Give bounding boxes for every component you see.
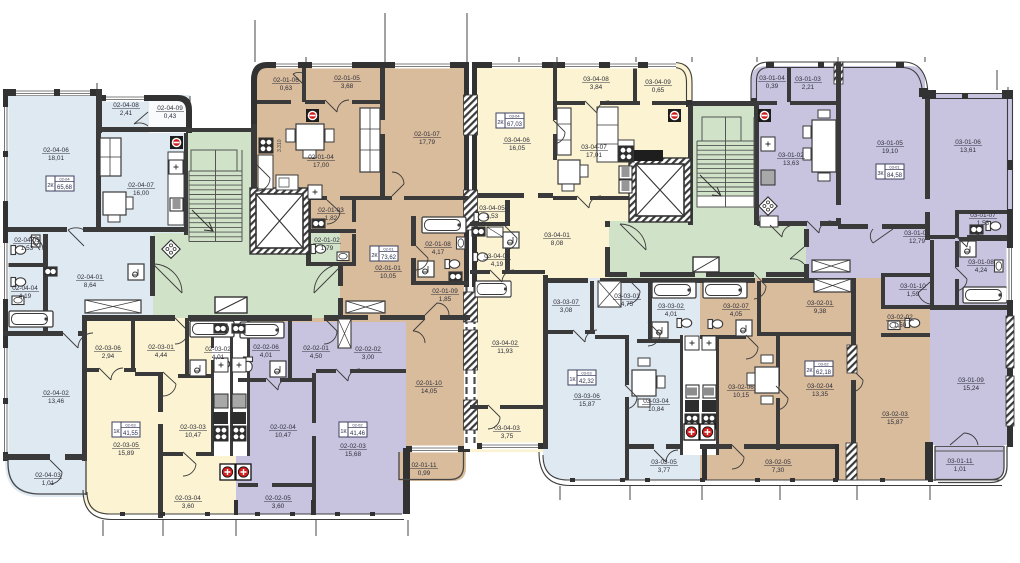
svg-text:02-01: 02-01 — [383, 247, 394, 252]
svg-text:02-04-09: 02-04-09 — [157, 105, 183, 112]
svg-text:1,53: 1,53 — [21, 245, 34, 252]
svg-text:02-04-08: 02-04-08 — [113, 102, 139, 109]
svg-text:03-04-08: 03-04-08 — [583, 76, 609, 83]
svg-text:1,82: 1,82 — [325, 215, 338, 222]
svg-text:02-02-06: 02-02-06 — [253, 344, 279, 351]
svg-text:03-04-05: 03-04-05 — [479, 205, 505, 212]
svg-text:4,17: 4,17 — [432, 249, 445, 256]
svg-text:03-01-07: 03-01-07 — [970, 212, 996, 219]
svg-text:3,84: 3,84 — [590, 84, 603, 91]
svg-text:4,50: 4,50 — [310, 353, 323, 360]
svg-text:0,99: 0,99 — [418, 470, 431, 477]
svg-text:02-01-01: 02-01-01 — [375, 265, 401, 272]
svg-text:02-03-02: 02-03-02 — [205, 346, 231, 353]
svg-text:02-03-05: 02-03-05 — [113, 442, 139, 449]
svg-text:03-03: 03-03 — [581, 371, 592, 376]
svg-text:4,44: 4,44 — [155, 352, 168, 359]
svg-text:03-02-02: 03-02-02 — [887, 314, 913, 321]
svg-text:10,84: 10,84 — [648, 406, 664, 413]
svg-text:03-02: 03-02 — [818, 362, 829, 367]
svg-text:1,01: 1,01 — [42, 480, 55, 487]
svg-text:03-04-02: 03-04-02 — [492, 340, 518, 347]
svg-text:2К: 2К — [47, 183, 54, 189]
svg-text:4,01: 4,01 — [212, 354, 225, 361]
svg-text:02-04-06: 02-04-06 — [43, 147, 69, 154]
svg-text:03-01-11: 03-01-11 — [947, 458, 973, 465]
svg-text:03-01-03: 03-01-03 — [795, 76, 821, 83]
svg-text:41,46: 41,46 — [350, 431, 366, 437]
svg-text:03-03-07: 03-03-07 — [553, 299, 579, 306]
svg-text:10,15: 10,15 — [733, 392, 749, 399]
svg-text:03-02-06: 03-02-06 — [728, 384, 754, 391]
svg-text:03-03-02: 03-03-02 — [658, 303, 684, 310]
svg-text:13,46: 13,46 — [48, 398, 64, 405]
svg-text:02-01-08: 02-01-08 — [425, 241, 451, 248]
svg-text:1,79: 1,79 — [321, 245, 334, 252]
svg-text:02-01-06: 02-01-06 — [273, 77, 299, 84]
svg-text:03-04-01: 03-04-01 — [544, 232, 570, 239]
svg-text:03-04-06: 03-04-06 — [504, 137, 530, 144]
svg-text:03-01: 03-01 — [889, 165, 900, 170]
svg-text:4,01: 4,01 — [260, 352, 273, 359]
svg-text:1,53: 1,53 — [977, 220, 990, 227]
svg-text:02-03-04: 02-03-04 — [175, 495, 201, 502]
svg-text:7,30: 7,30 — [772, 467, 785, 474]
svg-text:03-01-06: 03-01-06 — [955, 139, 981, 146]
svg-text:13,61: 13,61 — [960, 147, 976, 154]
svg-text:03-01-08: 03-01-08 — [968, 259, 994, 266]
svg-text:02-04-03: 02-04-03 — [35, 472, 61, 479]
svg-text:02-02-01: 02-02-01 — [303, 345, 329, 352]
svg-text:2,21: 2,21 — [802, 84, 815, 91]
svg-text:8,08: 8,08 — [551, 240, 564, 247]
svg-text:3К: 3К — [877, 171, 884, 177]
svg-text:03-04-07: 03-04-07 — [581, 144, 607, 151]
svg-text:1,59: 1,59 — [907, 291, 920, 298]
svg-text:1К: 1К — [340, 429, 347, 435]
svg-text:3,60: 3,60 — [182, 503, 195, 510]
svg-text:16,05: 16,05 — [509, 145, 525, 152]
svg-text:17,79: 17,79 — [419, 139, 435, 146]
svg-text:03-03-01: 03-03-01 — [614, 293, 640, 300]
svg-text:41,55: 41,55 — [123, 431, 139, 437]
svg-text:02-01-04: 02-01-04 — [308, 154, 334, 161]
svg-text:3,08: 3,08 — [560, 307, 573, 314]
svg-text:84,58: 84,58 — [887, 173, 903, 179]
svg-text:02-02: 02-02 — [352, 423, 363, 428]
svg-text:03-04-09: 03-04-09 — [645, 79, 671, 86]
svg-text:02-02-02: 02-02-02 — [355, 346, 381, 353]
svg-text:02-01-10: 02-01-10 — [416, 380, 442, 387]
svg-text:10,05: 10,05 — [380, 273, 396, 280]
svg-text:14,05: 14,05 — [421, 388, 437, 395]
svg-text:65,68: 65,68 — [57, 185, 73, 191]
svg-text:3.310: 3.310 — [277, 139, 283, 152]
svg-text:18,01: 18,01 — [48, 155, 64, 162]
svg-text:1,50: 1,50 — [894, 322, 907, 329]
svg-text:15,89: 15,89 — [118, 450, 134, 457]
svg-text:02-04: 02-04 — [59, 177, 70, 182]
svg-text:2К: 2К — [497, 120, 504, 126]
svg-text:02-02-05: 02-02-05 — [265, 495, 291, 502]
svg-text:02-04-04: 02-04-04 — [12, 285, 38, 292]
svg-text:8,64: 8,64 — [84, 282, 97, 289]
svg-text:13,35: 13,35 — [812, 391, 828, 398]
svg-text:02-01-07: 02-01-07 — [414, 131, 440, 138]
svg-text:03-02-05: 03-02-05 — [765, 459, 791, 466]
svg-text:3,77: 3,77 — [658, 467, 671, 474]
svg-text:02-04-05: 02-04-05 — [14, 237, 40, 244]
svg-text:3,75: 3,75 — [501, 433, 514, 440]
svg-text:67,03: 67,03 — [507, 122, 523, 128]
svg-text:02-02-04: 02-02-04 — [270, 424, 296, 431]
svg-text:02-02-03: 02-02-03 — [340, 443, 366, 450]
svg-text:15,87: 15,87 — [887, 419, 903, 426]
svg-text:02-01-05: 02-01-05 — [334, 75, 360, 82]
svg-text:02-04-01: 02-04-01 — [77, 274, 103, 281]
svg-text:2К: 2К — [806, 368, 813, 374]
svg-text:19,10: 19,10 — [882, 148, 898, 155]
svg-text:03-02-03: 03-02-03 — [882, 411, 908, 418]
svg-text:3,00: 3,00 — [362, 354, 375, 361]
svg-text:2,94: 2,94 — [102, 353, 115, 360]
svg-text:02-03: 02-03 — [125, 423, 136, 428]
svg-text:03-01-10: 03-01-10 — [900, 283, 926, 290]
svg-text:03-02-07: 03-02-07 — [723, 303, 749, 310]
svg-text:03-04: 03-04 — [509, 114, 520, 119]
svg-text:4,01: 4,01 — [665, 311, 678, 318]
svg-text:10,47: 10,47 — [275, 432, 291, 439]
svg-text:1К: 1К — [569, 377, 576, 383]
svg-text:03-02-01: 03-02-01 — [807, 300, 833, 307]
svg-text:0,39: 0,39 — [766, 83, 779, 90]
svg-text:1,85: 1,85 — [439, 296, 452, 303]
svg-text:03-01-02: 03-01-02 — [778, 152, 804, 159]
svg-text:4,75: 4,75 — [621, 301, 634, 308]
svg-text:02-01-02: 02-01-02 — [314, 237, 340, 244]
svg-text:02-03-03: 02-03-03 — [180, 424, 206, 431]
svg-text:03-04-03: 03-04-03 — [494, 425, 520, 432]
svg-text:42,32: 42,32 — [579, 379, 595, 385]
svg-text:02-03-01: 02-03-01 — [148, 344, 174, 351]
svg-text:11,93: 11,93 — [497, 348, 513, 355]
svg-text:02-01-09: 02-01-09 — [432, 288, 458, 295]
svg-text:03-02-04: 03-02-04 — [807, 383, 833, 390]
svg-text:62,18: 62,18 — [816, 370, 832, 376]
svg-text:03-01-09: 03-01-09 — [958, 377, 984, 384]
svg-text:12,79: 12,79 — [909, 238, 925, 245]
svg-text:4,19: 4,19 — [19, 293, 32, 300]
svg-text:02-04-02: 02-04-02 — [43, 390, 69, 397]
svg-text:02-04-07: 02-04-07 — [128, 182, 154, 189]
svg-text:03-03-05: 03-03-05 — [651, 459, 677, 466]
svg-text:03-01-05: 03-01-05 — [877, 140, 903, 147]
svg-text:2,41: 2,41 — [120, 110, 133, 117]
svg-text:0,63: 0,63 — [280, 85, 293, 92]
svg-text:4,05: 4,05 — [730, 311, 743, 318]
svg-text:3,68: 3,68 — [341, 83, 354, 90]
svg-text:1К: 1К — [113, 429, 120, 435]
svg-text:02-01-03: 02-01-03 — [318, 207, 344, 214]
svg-text:03-03-06: 03-03-06 — [574, 393, 600, 400]
svg-text:0,65: 0,65 — [652, 87, 665, 94]
svg-text:0,43: 0,43 — [164, 113, 177, 120]
svg-text:15,68: 15,68 — [345, 451, 361, 458]
svg-text:3,60: 3,60 — [272, 503, 285, 510]
svg-text:1,53: 1,53 — [486, 213, 499, 220]
svg-text:02-01-11: 02-01-11 — [411, 462, 437, 469]
svg-text:13,63: 13,63 — [783, 160, 799, 167]
svg-text:10,47: 10,47 — [185, 432, 201, 439]
svg-text:03-04-04: 03-04-04 — [484, 253, 510, 260]
svg-text:03-01-01: 03-01-01 — [904, 230, 930, 237]
svg-text:03-01-04: 03-01-04 — [759, 75, 785, 82]
svg-text:73,62: 73,62 — [381, 255, 397, 261]
svg-text:03-03-04: 03-03-04 — [643, 398, 669, 405]
svg-text:9,38: 9,38 — [814, 308, 827, 315]
svg-text:17,01: 17,01 — [586, 152, 602, 159]
svg-text:15,87: 15,87 — [579, 401, 595, 408]
svg-text:2К: 2К — [371, 253, 378, 259]
svg-text:4,24: 4,24 — [975, 267, 988, 274]
svg-text:1,01: 1,01 — [954, 466, 967, 473]
svg-text:17,00: 17,00 — [313, 162, 329, 169]
svg-text:16,00: 16,00 — [133, 190, 149, 197]
svg-text:4,19: 4,19 — [491, 261, 504, 268]
svg-text:02-03-06: 02-03-06 — [95, 345, 121, 352]
svg-text:15,24: 15,24 — [963, 385, 979, 392]
